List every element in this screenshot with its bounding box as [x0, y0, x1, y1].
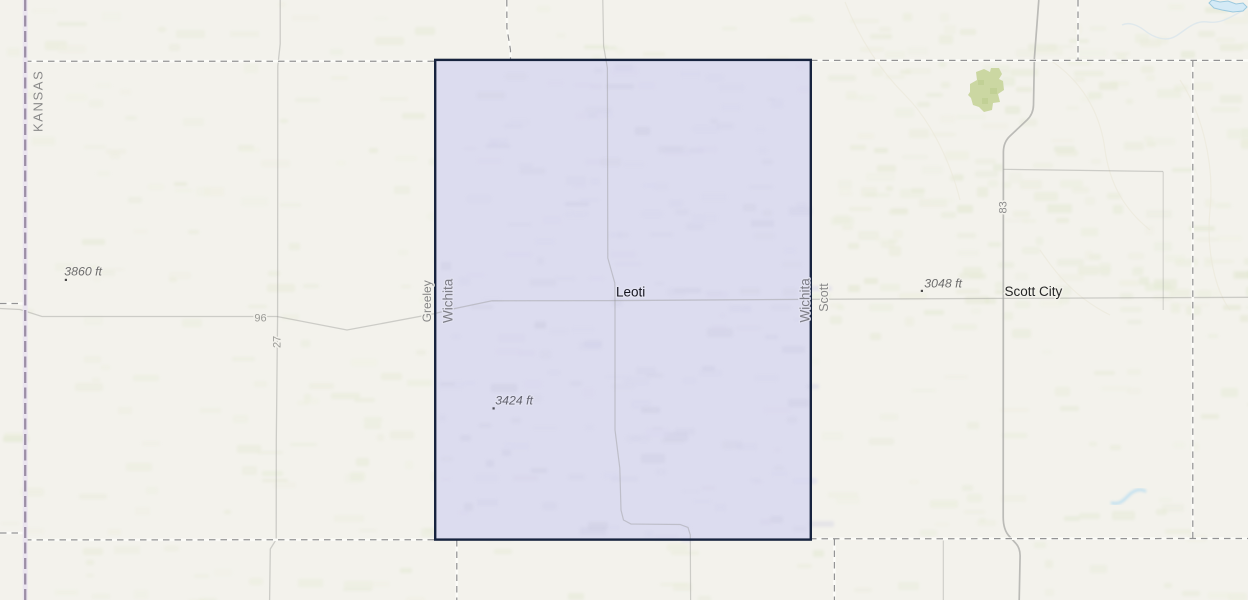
svg-text:KANSAS: KANSAS	[31, 70, 46, 132]
svg-text:3860 ft: 3860 ft	[64, 265, 102, 279]
svg-text:27: 27	[272, 336, 284, 348]
svg-text:96: 96	[254, 313, 266, 325]
svg-text:83: 83	[997, 201, 1009, 213]
svg-text:3048 ft: 3048 ft	[924, 277, 962, 291]
svg-text:Leoti: Leoti	[616, 285, 645, 300]
svg-text:Greeley: Greeley	[420, 280, 434, 322]
svg-text:Scott City: Scott City	[1005, 284, 1063, 299]
svg-text:Wichita: Wichita	[798, 278, 813, 323]
svg-text:Wichita: Wichita	[440, 278, 455, 323]
svg-text:Scott: Scott	[817, 283, 831, 312]
svg-text:3424 ft: 3424 ft	[495, 393, 533, 407]
